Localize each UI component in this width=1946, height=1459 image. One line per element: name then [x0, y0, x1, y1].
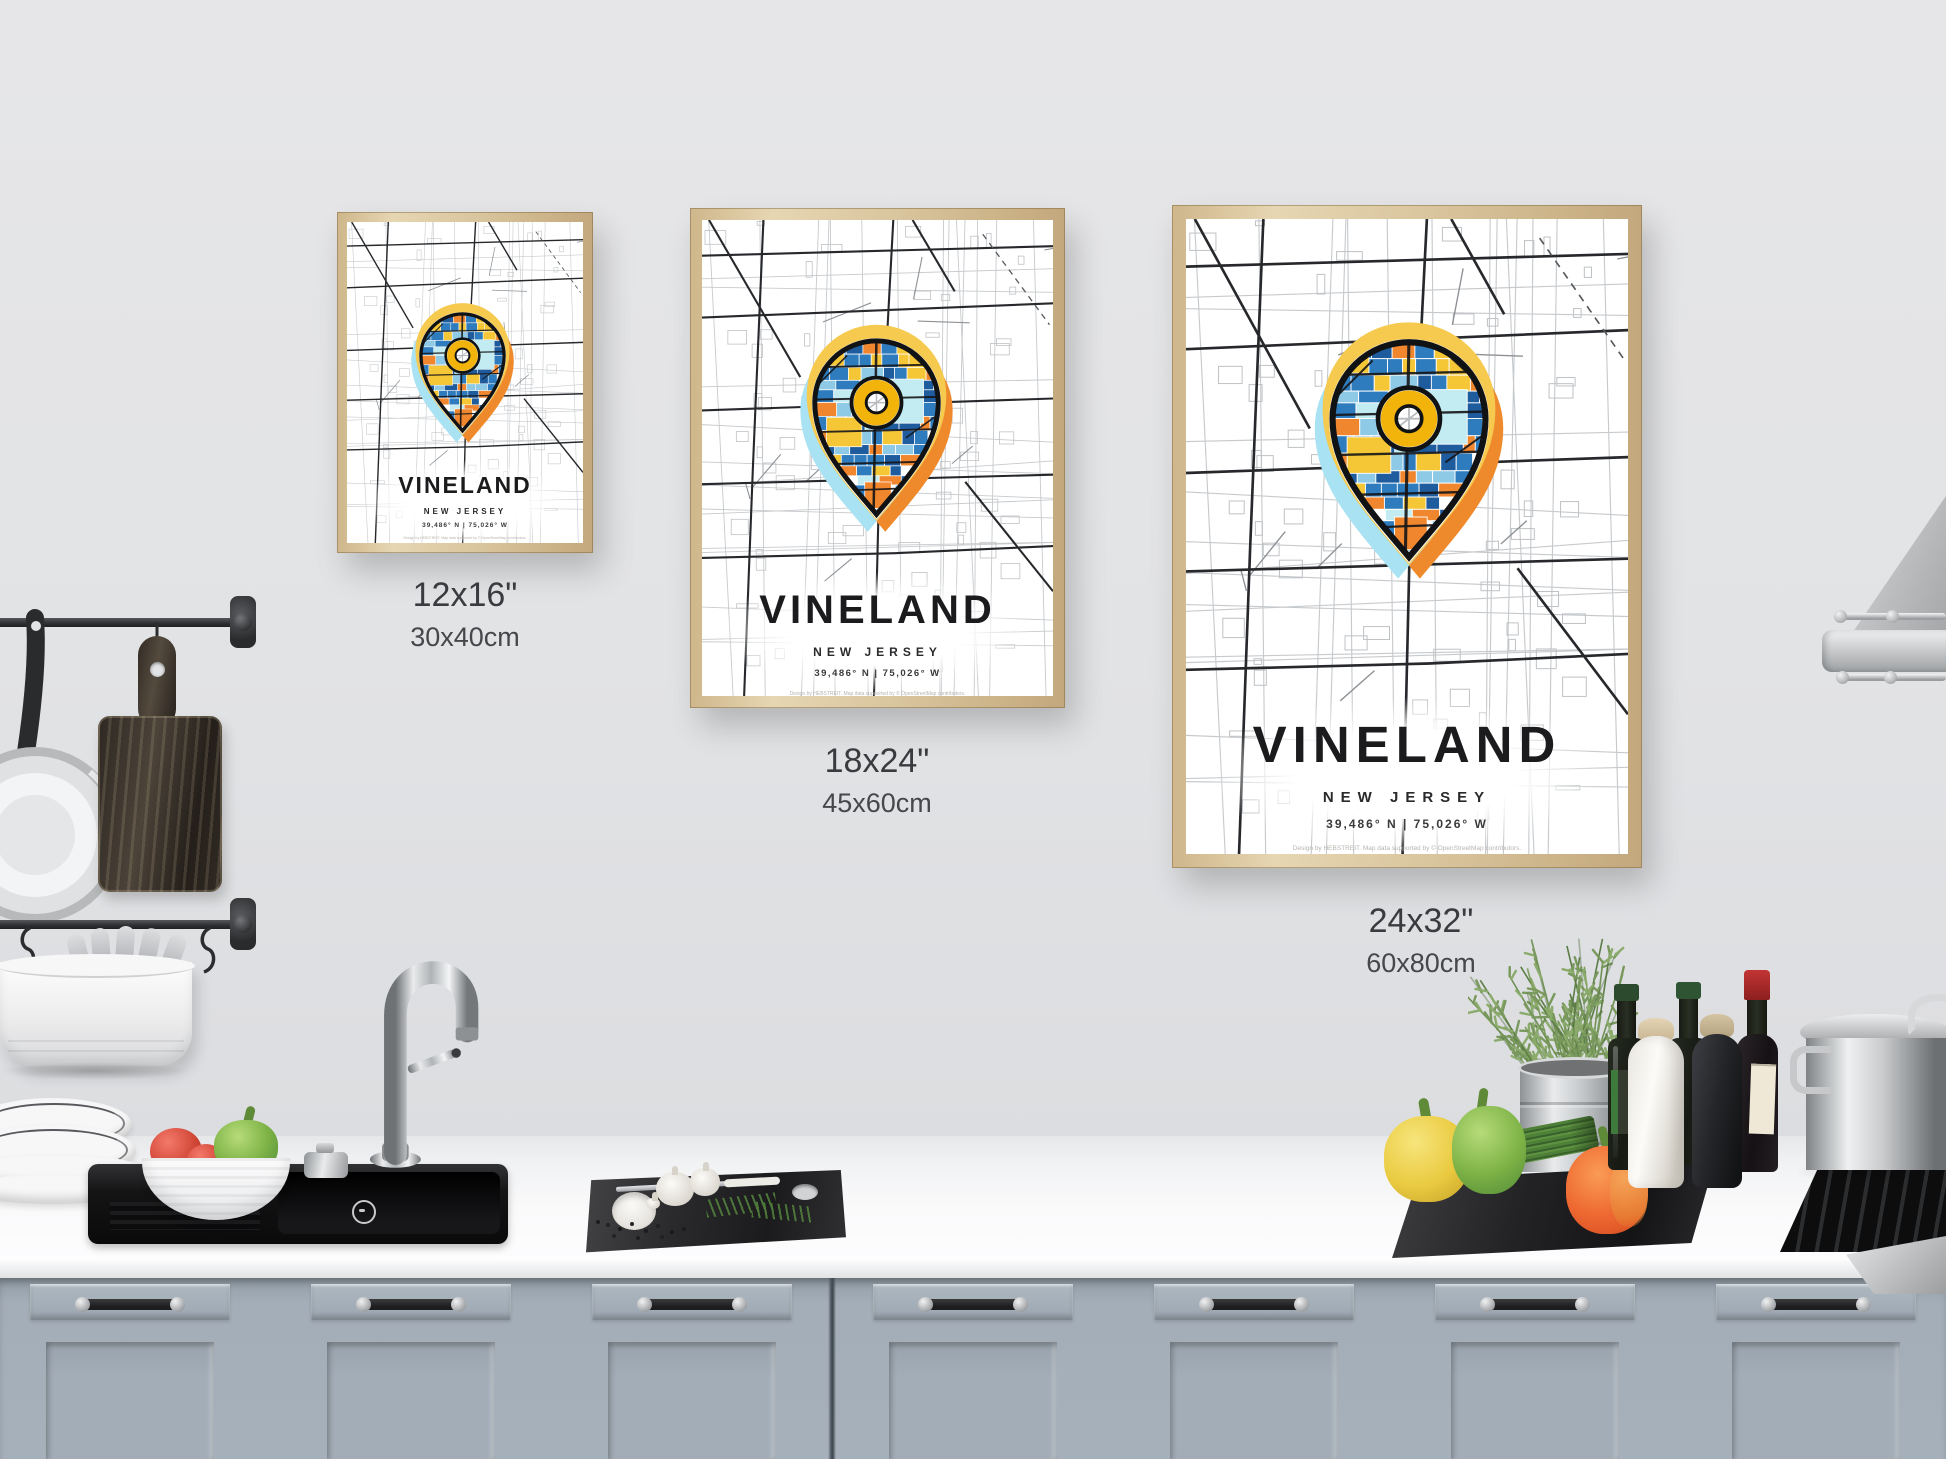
shadow: [0, 1062, 190, 1080]
poster-title: VINELAND: [702, 588, 1053, 633]
range-hood-rail-top: [1834, 613, 1946, 620]
cabinet-door-panel: [1451, 1342, 1619, 1459]
cabinet-door[interactable]: [311, 1328, 511, 1459]
poster-state: NEW JERSEY: [1186, 789, 1628, 806]
cabinet-seam: [828, 1278, 836, 1459]
cabinet-unit: [30, 1278, 230, 1459]
bottle-cap-green: [1676, 982, 1701, 999]
cabinet-unit: [311, 1278, 511, 1459]
utensil-bucket: [0, 962, 192, 1066]
cabinet-unit: [592, 1278, 792, 1459]
range-hood-band: [1822, 630, 1946, 672]
cabinet-door-panel: [889, 1342, 1057, 1459]
wine-label: [1749, 1064, 1776, 1135]
size-cm: 30x40cm: [345, 622, 585, 653]
bottle-cap-green: [1614, 984, 1639, 1001]
poster-text-block: VINELAND NEW JERSEY 39,486° N | 75,026° …: [347, 472, 583, 540]
cabinet-handle[interactable]: [1487, 1299, 1583, 1310]
poster-credit: Design by HEBSTREIT. Map data supported …: [1186, 845, 1628, 852]
peppercorns: [596, 1220, 600, 1224]
poster-state: NEW JERSEY: [347, 507, 583, 516]
poster-text-block: VINELAND NEW JERSEY 39,486° N | 75,026° …: [1186, 715, 1628, 852]
poster-coordinates: 39,486° N | 75,026° W: [702, 668, 1053, 679]
poster-credit: Design by HEBSTREIT. Map data supported …: [702, 691, 1053, 696]
poster-map-24x32: VINELAND NEW JERSEY 39,486° N | 75,026° …: [1186, 219, 1628, 854]
size-inches: 12x16": [345, 576, 585, 615]
cabinet-unit: [1154, 1278, 1354, 1459]
cutting-board-handle: [138, 636, 176, 728]
cabinet-drawer: [1435, 1284, 1635, 1320]
garlic-bulb: [656, 1172, 694, 1206]
kitchen-scene: VINELAND NEW JERSEY 39,486° N | 75,026° …: [0, 0, 1946, 1459]
pepper-grinder: [1692, 1034, 1742, 1188]
garlic-bulb: [690, 1168, 720, 1196]
cabinet-door-panel: [46, 1342, 214, 1459]
salt-grinder: [1628, 1036, 1684, 1188]
cabinet-door[interactable]: [1435, 1328, 1635, 1459]
board-hole: [792, 1184, 818, 1200]
rail-ball: [1836, 671, 1849, 684]
soap-dispenser: [304, 1152, 348, 1178]
poster-coordinates: 39,486° N | 75,026° W: [1186, 817, 1628, 831]
cabinet-door[interactable]: [873, 1328, 1073, 1459]
poster-frame-12x16: VINELAND NEW JERSEY 39,486° N | 75,026° …: [337, 212, 593, 553]
cabinet-drawer: [1154, 1284, 1354, 1320]
cabinet-door-panel: [1732, 1342, 1900, 1459]
cabinet-drawer: [873, 1284, 1073, 1320]
poster-map-18x24: VINELAND NEW JERSEY 39,486° N | 75,026° …: [702, 220, 1053, 696]
cabinet-unit: [1435, 1278, 1635, 1459]
poster-frame-18x24: VINELAND NEW JERSEY 39,486° N | 75,026° …: [690, 208, 1065, 708]
cabinet-door-panel: [1170, 1342, 1338, 1459]
range-hood-rail-bottom: [1836, 674, 1946, 681]
poster-frame-24x32: VINELAND NEW JERSEY 39,486° N | 75,026° …: [1172, 205, 1642, 868]
size-inches: 18x24": [757, 742, 997, 781]
cabinet-unit: [873, 1278, 1073, 1459]
cabinet-drawer: [592, 1284, 792, 1320]
poster-text-block: VINELAND NEW JERSEY 39,486° N | 75,026° …: [702, 588, 1053, 696]
cabinet-door[interactable]: [1716, 1328, 1916, 1459]
poster-map-12x16: VINELAND NEW JERSEY 39,486° N | 75,026° …: [347, 222, 583, 543]
poster-title: VINELAND: [1186, 715, 1628, 774]
kitchen-faucet[interactable]: [352, 918, 484, 1180]
cabinets: [0, 1278, 1946, 1459]
cabinet-unit: [1716, 1278, 1916, 1459]
size-label-small: 12x16" 30x40cm: [345, 576, 585, 653]
poster-state: NEW JERSEY: [702, 645, 1053, 659]
garlic-clove: [646, 1198, 660, 1209]
size-cm: 45x60cm: [757, 788, 997, 819]
rail-end-cap: [230, 596, 256, 648]
cabinet-handle[interactable]: [82, 1299, 178, 1310]
cabinet-drawer: [311, 1284, 511, 1320]
rail-ball: [1884, 671, 1897, 684]
pot-side-handle: [1790, 1046, 1831, 1094]
rail-end-cap: [230, 898, 256, 950]
wine-cap-red: [1744, 970, 1770, 1000]
cabinet-door[interactable]: [30, 1328, 230, 1459]
cabinet-drawer: [30, 1284, 230, 1320]
cutting-board: [98, 716, 222, 892]
poster-title: VINELAND: [347, 472, 583, 499]
cabinet-handle[interactable]: [363, 1299, 459, 1310]
rail-ball: [1886, 610, 1899, 623]
size-label-medium: 18x24" 45x60cm: [757, 742, 997, 819]
cabinet-door-panel: [327, 1342, 495, 1459]
cabinet-door-panel: [608, 1342, 776, 1459]
sink-logo: [352, 1200, 376, 1224]
cabinet-handle[interactable]: [925, 1299, 1021, 1310]
sink-basin: [278, 1172, 500, 1234]
cabinet-handle[interactable]: [1206, 1299, 1302, 1310]
rail-ball: [1834, 610, 1847, 623]
cabinet-handle[interactable]: [644, 1299, 740, 1310]
cabinet-door[interactable]: [592, 1328, 792, 1459]
cabinet-door[interactable]: [1154, 1328, 1354, 1459]
bell-pepper-green: [1452, 1106, 1526, 1194]
cabinet-handle[interactable]: [1768, 1299, 1864, 1310]
poster-credit: Design by HEBSTREIT. Map data supported …: [347, 536, 583, 540]
poster-coordinates: 39,486° N | 75,026° W: [347, 522, 583, 529]
cutting-board-hole: [150, 662, 165, 677]
